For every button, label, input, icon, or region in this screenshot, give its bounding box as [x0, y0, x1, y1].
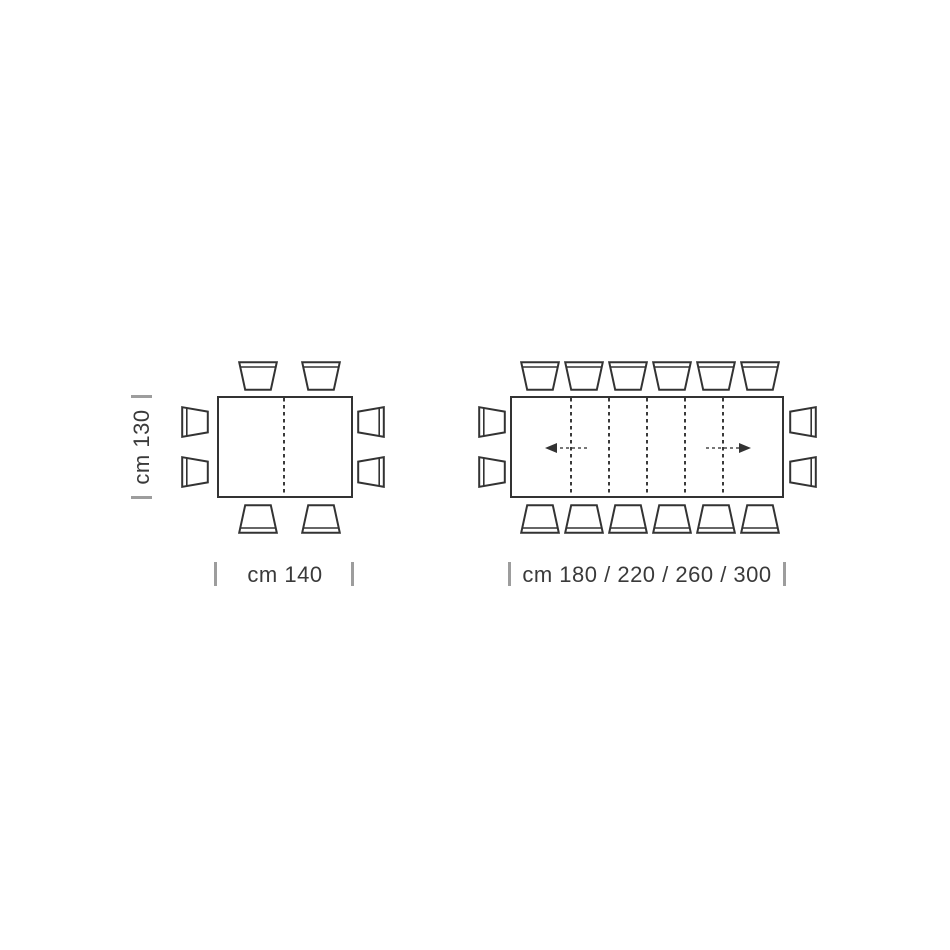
chair-icon [181, 406, 209, 438]
chair-icon [520, 504, 560, 534]
width-dimension-label: cm 140 [217, 562, 353, 588]
chair-icon [301, 504, 341, 534]
extend-arrow-left-icon [544, 441, 590, 455]
depth-dimension-label: cm 130 [129, 387, 155, 507]
chair-icon [564, 361, 604, 391]
chair-icon [789, 456, 817, 488]
chair-icon [652, 361, 692, 391]
chair-icon [478, 456, 506, 488]
extension-leaf-line [684, 398, 686, 496]
chair-icon [520, 361, 560, 391]
chair-icon [357, 456, 385, 488]
chair-icon [652, 504, 692, 534]
chair-icon [238, 504, 278, 534]
table-top [217, 396, 353, 498]
chair-icon [740, 361, 780, 391]
chair-icon [740, 504, 780, 534]
extend-arrow-right-icon [704, 441, 752, 455]
chair-icon [608, 504, 648, 534]
chair-icon [564, 504, 604, 534]
product-dimension-diagram: cm 130 cm 140 [0, 0, 950, 950]
chair-icon [789, 406, 817, 438]
chair-icon [181, 456, 209, 488]
chair-icon [301, 361, 341, 391]
extension-leaf-line [283, 398, 285, 496]
width-dimension-label: cm 180 / 220 / 260 / 300 [510, 562, 784, 588]
chair-icon [478, 406, 506, 438]
chair-icon [238, 361, 278, 391]
chair-icon [696, 361, 736, 391]
extension-leaf-line [608, 398, 610, 496]
chair-icon [357, 406, 385, 438]
chair-icon [608, 361, 648, 391]
extension-leaf-line [646, 398, 648, 496]
chair-icon [696, 504, 736, 534]
